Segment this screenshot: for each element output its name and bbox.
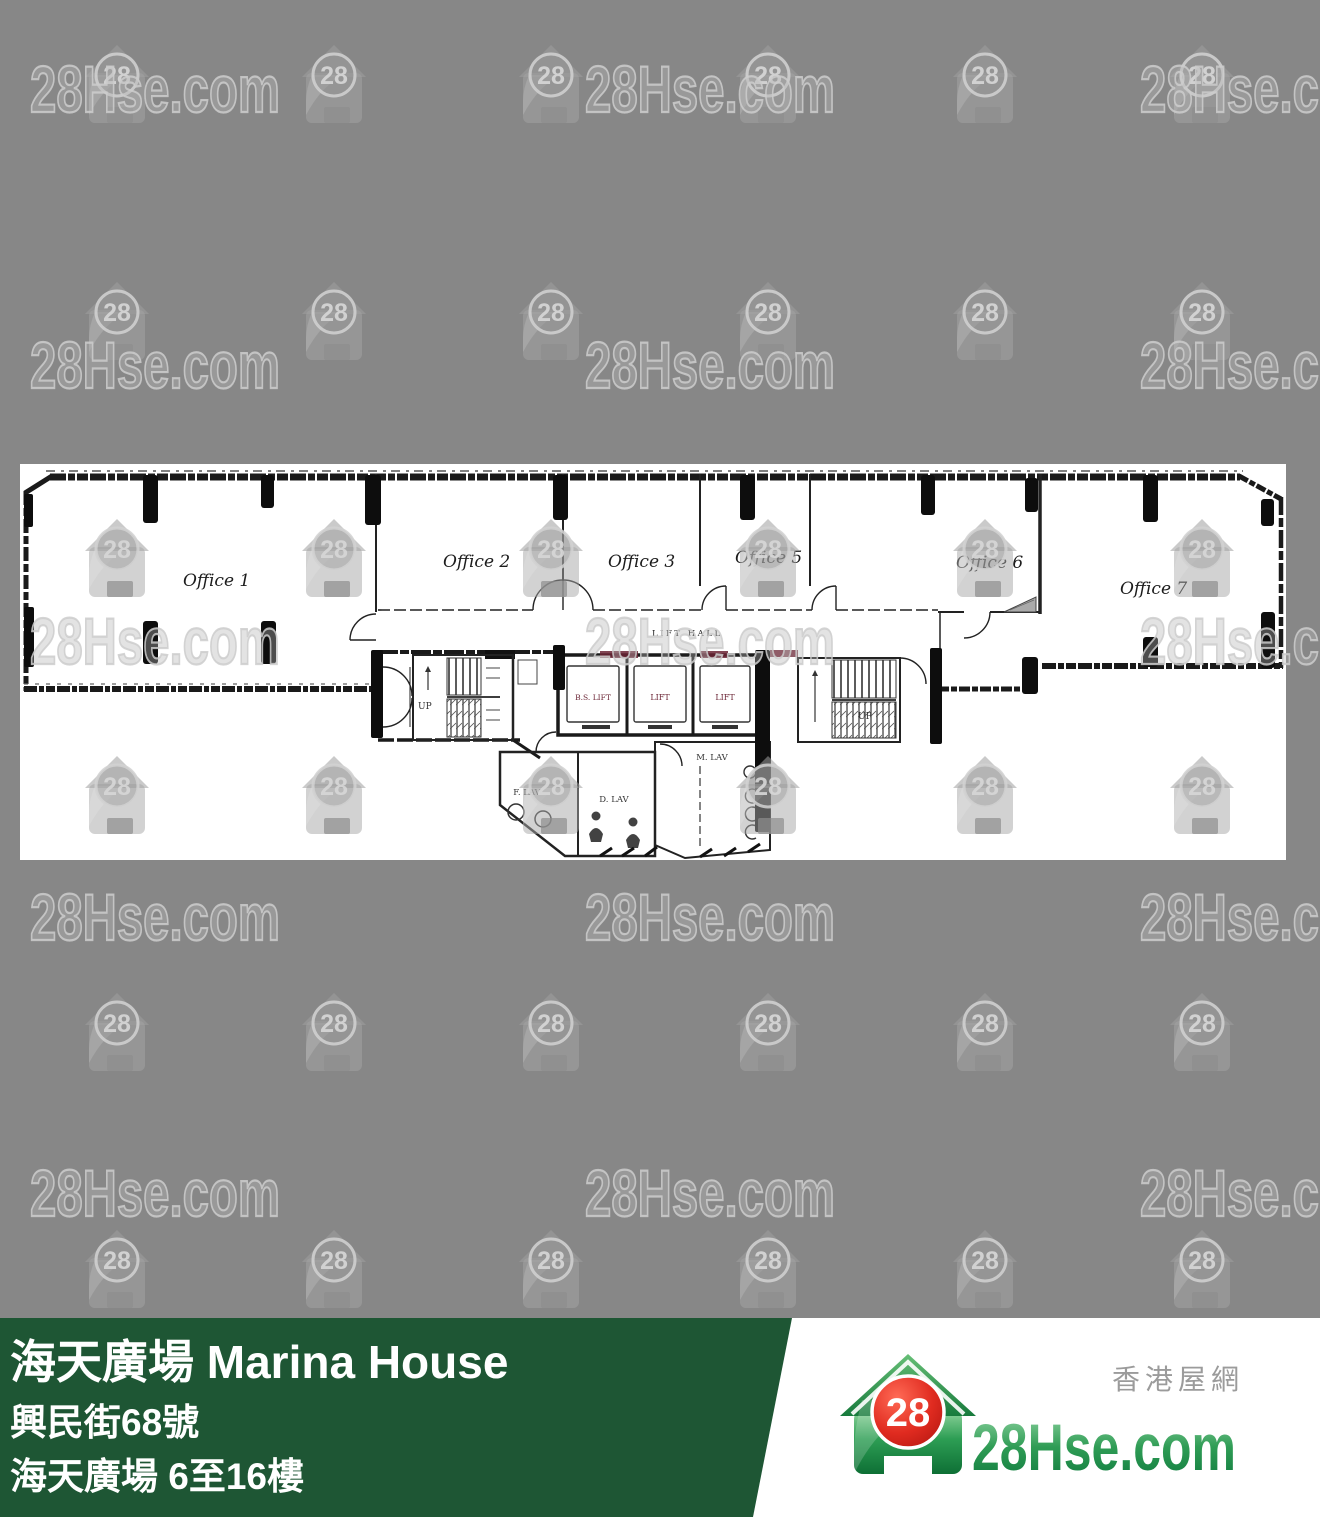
lift-hall-label: LIFT HALL (652, 629, 723, 639)
disabled-lav-label: D. LAV (599, 795, 629, 805)
female-lav-label: F. LAV (513, 788, 541, 798)
floor-plan-drawing: UP B.S. LIFT LIFT LIFT (0, 0, 1320, 1517)
plan-paper (20, 464, 1286, 860)
office-5-label: Office 5 (735, 548, 802, 568)
office-7-label: Office 7 (1120, 579, 1187, 599)
logo-tagline: 香港屋網 (1112, 1363, 1244, 1396)
lift-3-label: LIFT (715, 693, 735, 702)
lift-2-label: LIFT (650, 693, 670, 702)
office-1-label: Office 1 (183, 571, 250, 591)
office-2-label: Office 2 (443, 552, 510, 572)
floor-plan-page: UP B.S. LIFT LIFT LIFT (0, 0, 1320, 1517)
site-logo[interactable]: 28 28Hse.com 香港屋網 (0, 1318, 1320, 1517)
stairs-up-label-left: UP (418, 702, 432, 712)
logo-house-icon: 28 (840, 1354, 976, 1474)
male-lav-label: M. LAV (696, 753, 728, 763)
stairs-up-label-right: UP (858, 712, 872, 722)
office-3-label: Office 3 (608, 552, 675, 572)
logo-badge-number: 28 (886, 1391, 931, 1435)
office-6-label: Office 6 (956, 553, 1023, 573)
logo-brand-text: 28Hse.com (972, 1410, 1236, 1484)
lift-1-label: B.S. LIFT (575, 693, 611, 702)
